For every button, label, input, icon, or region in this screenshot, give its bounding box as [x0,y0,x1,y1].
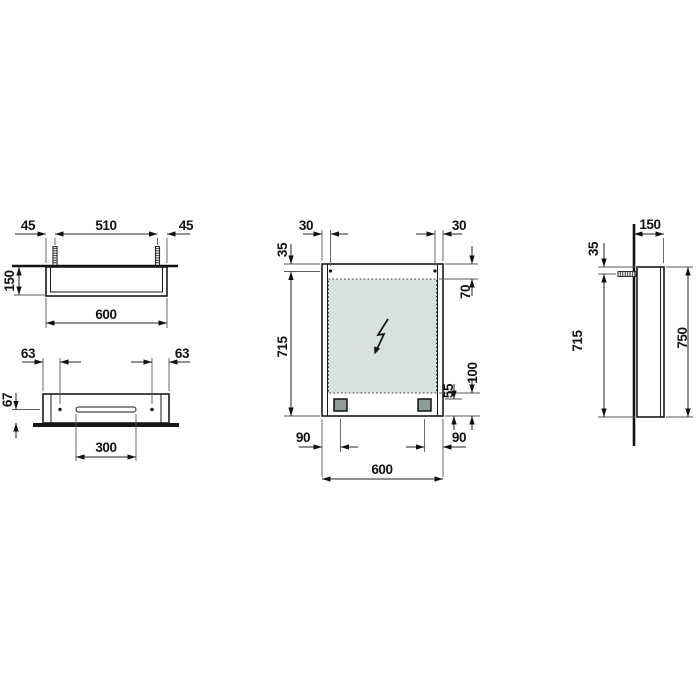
dim-label-hinge-spacing: 510 [95,218,116,233]
dim-label-side-height: 750 [675,327,690,348]
dim-label-offset-left: 45 [21,218,36,233]
cabinet-body-inner [51,267,163,292]
screw-anchor-icon [53,247,57,266]
bracket-hole [58,408,61,411]
dim-label-bracket-offset-left: 63 [21,346,36,361]
dim-label-width: 600 [95,307,116,322]
dim-label-depth: 150 [2,270,17,291]
fixing-hole [329,269,332,272]
bracket-hole [150,408,153,411]
dim-label-front-width: 600 [371,462,392,477]
dim-label-glass-to-bottom: 100 [465,362,480,383]
front-view: 30 30 35 715 70 55 100 90 90 600 [275,218,480,479]
fixing-hole [433,269,436,272]
screw-anchor-icon [618,271,636,276]
screw-anchor-icon [155,247,159,266]
dim-label-slot-width: 300 [95,440,116,455]
dim-label-bracket-height: 67 [0,393,15,407]
dim-label-pad-inset-right: 90 [452,430,466,445]
side-view: 150 35 715 750 [570,217,693,446]
dim-label-offset-right: 45 [179,218,194,233]
mounting-bracket-view: 63 63 67 300 [0,346,190,461]
dim-label-pad-to-bottom: 55 [441,383,456,398]
dim-label-side-depth: 150 [639,217,660,232]
dim-label-top-to-hole: 35 [275,242,290,257]
dim-label-bracket-offset-right: 63 [175,346,190,361]
technical-drawing-canvas: 45 510 45 150 600 63 63 67 300 [0,0,700,700]
mounting-pad [418,399,431,411]
dim-label-pad-inset-left: 90 [296,430,310,445]
mirror-cabinet-dimension-drawing: 45 510 45 150 600 63 63 67 300 [0,0,700,700]
bracket-slot [76,407,136,412]
top-view: 45 510 45 150 600 [2,218,194,328]
dim-label-top-to-anchor: 35 [586,241,601,256]
cabinet-side-outline [637,267,664,417]
dim-label-anchor-to-bottom: 715 [570,329,585,351]
dim-label-hole-offset-right: 30 [452,218,466,233]
mounting-pad [334,399,347,411]
dim-label-top-to-glass: 70 [458,285,473,299]
dim-label-hole-to-bottom: 715 [275,335,290,357]
dim-label-hole-offset-left: 30 [299,218,313,233]
bracket-body [43,394,169,423]
